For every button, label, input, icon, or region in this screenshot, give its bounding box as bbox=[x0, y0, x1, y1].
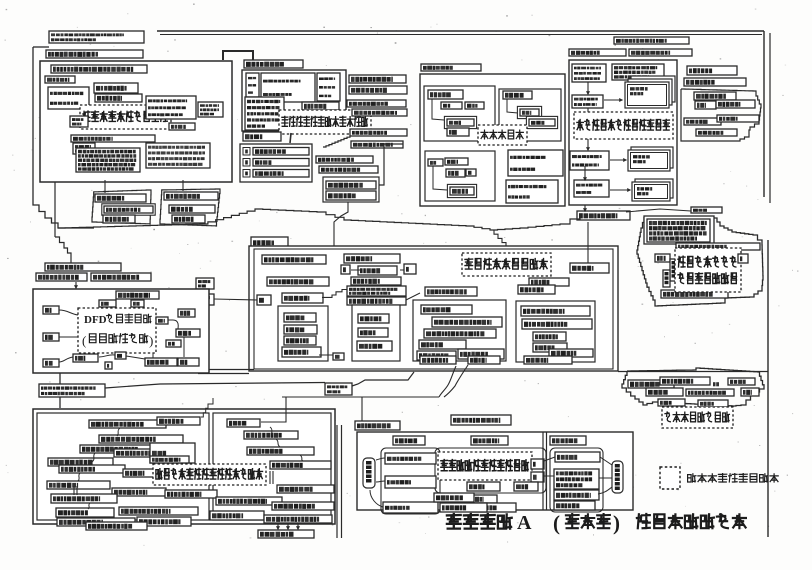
svg-text:): ) bbox=[613, 511, 620, 535]
svg-text:DFD: DFD bbox=[84, 314, 107, 326]
svg-text:A: A bbox=[517, 512, 532, 534]
svg-text:(: ( bbox=[553, 511, 560, 535]
svg-text:): ) bbox=[149, 333, 153, 348]
svg-text:(: ( bbox=[82, 333, 86, 348]
